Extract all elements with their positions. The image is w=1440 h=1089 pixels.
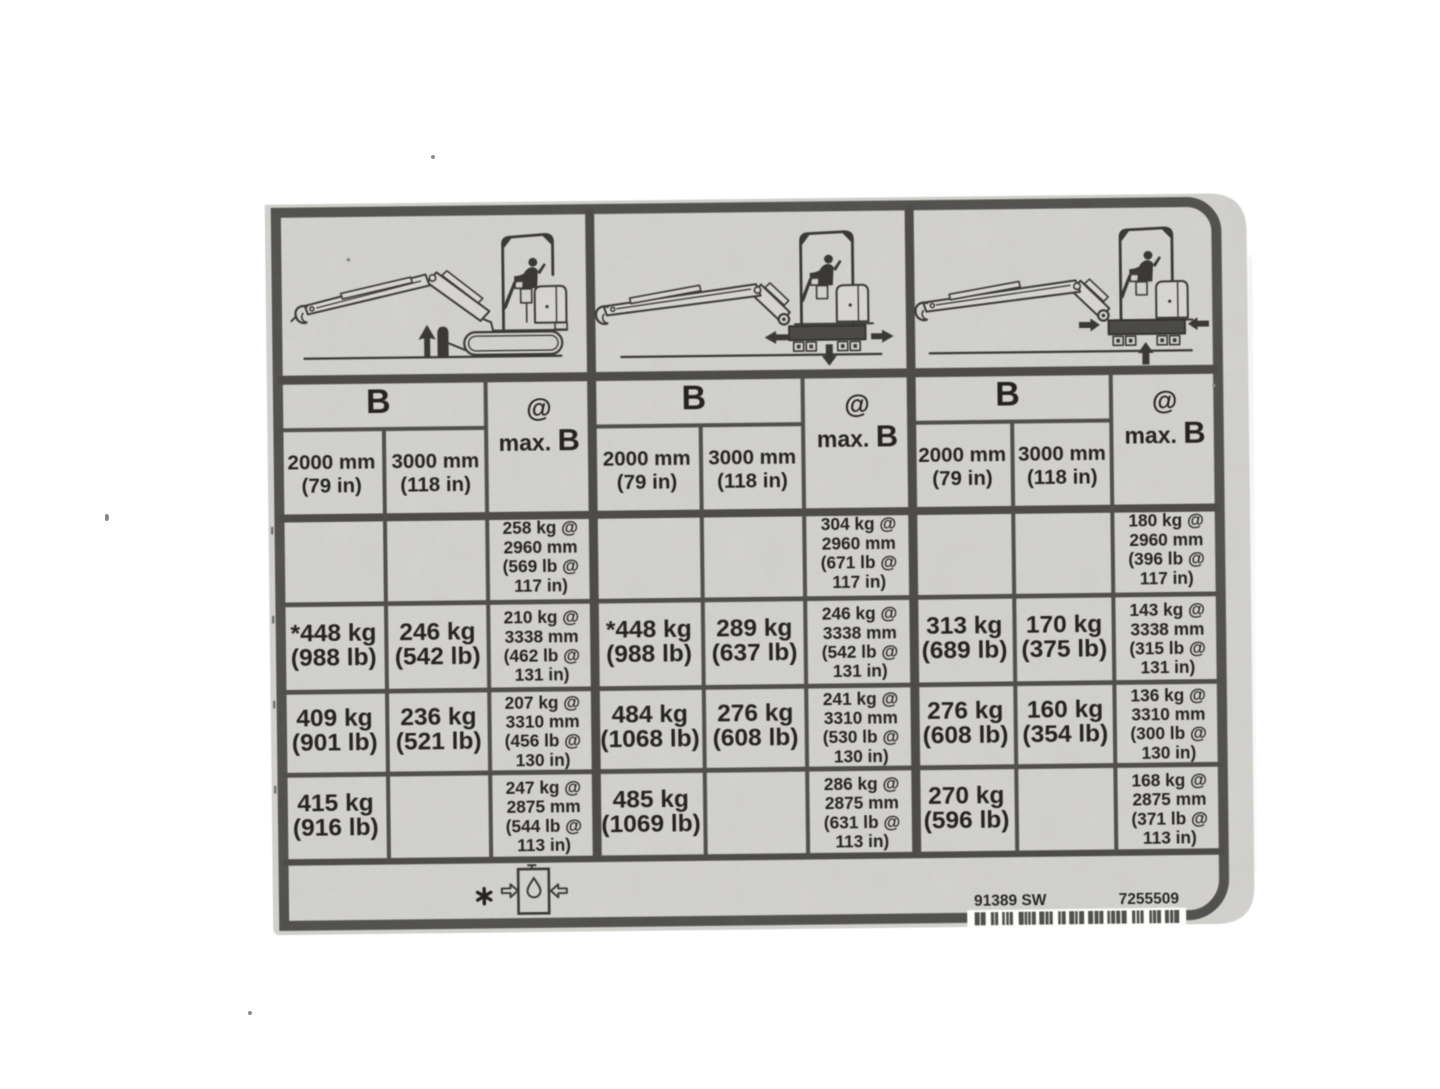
svg-text:136 kg @: 136 kg @ bbox=[1130, 684, 1206, 705]
svg-text:(569 lb @: (569 lb @ bbox=[502, 556, 579, 577]
svg-text:143 kg @: 143 kg @ bbox=[1129, 599, 1205, 620]
svg-text:113 in): 113 in) bbox=[1143, 827, 1197, 848]
svg-text:(596 lb): (596 lb) bbox=[924, 807, 1010, 835]
svg-text:3000 mm: 3000 mm bbox=[708, 445, 796, 469]
svg-text:131 in): 131 in) bbox=[515, 664, 570, 685]
svg-text:(608 lb): (608 lb) bbox=[713, 724, 799, 752]
svg-text:2875 mm: 2875 mm bbox=[825, 792, 899, 813]
svg-text:(371 lb @: (371 lb @ bbox=[1131, 808, 1208, 829]
svg-text:(901 lb): (901 lb) bbox=[292, 729, 378, 757]
svg-text:247 kg @: 247 kg @ bbox=[506, 777, 582, 798]
svg-text:210 kg @: 210 kg @ bbox=[504, 607, 580, 628]
svg-text:(300 lb @: (300 lb @ bbox=[1130, 723, 1207, 744]
svg-text:(988 lb): (988 lb) bbox=[606, 640, 692, 668]
svg-text:3338 mm: 3338 mm bbox=[823, 622, 897, 643]
svg-text:113 in): 113 in) bbox=[835, 831, 889, 852]
svg-text:@: @ bbox=[1152, 385, 1178, 415]
svg-text:(637 lb): (637 lb) bbox=[712, 639, 798, 667]
svg-text:(375 lb): (375 lb) bbox=[1021, 635, 1107, 663]
svg-text:(1068 lb): (1068 lb) bbox=[600, 725, 700, 753]
svg-text:B: B bbox=[995, 375, 1020, 413]
svg-text:3310 mm: 3310 mm bbox=[1131, 704, 1205, 725]
svg-text:117 in): 117 in) bbox=[832, 571, 886, 592]
svg-text:3338 mm: 3338 mm bbox=[1130, 619, 1204, 640]
svg-text:131 in): 131 in) bbox=[833, 661, 888, 682]
svg-text:(689 lb): (689 lb) bbox=[921, 636, 1007, 664]
svg-text:2960 mm: 2960 mm bbox=[822, 533, 896, 554]
svg-text:3338 mm: 3338 mm bbox=[505, 626, 579, 647]
svg-text:2000 mm: 2000 mm bbox=[287, 450, 375, 474]
svg-text:130 in): 130 in) bbox=[1141, 742, 1196, 763]
svg-text:130 in): 130 in) bbox=[516, 750, 571, 771]
svg-text:(79 in): (79 in) bbox=[932, 466, 993, 490]
svg-text:2000 mm: 2000 mm bbox=[918, 443, 1006, 467]
svg-text:(988 lb): (988 lb) bbox=[291, 644, 377, 672]
svg-text:(79 in): (79 in) bbox=[617, 470, 678, 494]
svg-text:117 in): 117 in) bbox=[1140, 568, 1194, 589]
svg-text:(608 lb): (608 lb) bbox=[923, 721, 1009, 749]
svg-text:2000 mm: 2000 mm bbox=[603, 447, 691, 471]
svg-text:B: B bbox=[366, 383, 391, 421]
svg-text:246 kg @: 246 kg @ bbox=[822, 603, 898, 624]
svg-text:2960 mm: 2960 mm bbox=[503, 536, 577, 557]
svg-text:(671 lb @: (671 lb @ bbox=[821, 552, 898, 573]
svg-text:180 kg @: 180 kg @ bbox=[1128, 510, 1204, 531]
svg-text:3310 mm: 3310 mm bbox=[506, 711, 580, 732]
svg-text:117 in): 117 in) bbox=[514, 575, 568, 596]
svg-text:207 kg @: 207 kg @ bbox=[505, 692, 581, 713]
svg-text:(79 in): (79 in) bbox=[301, 474, 362, 498]
svg-text:(462 lb @: (462 lb @ bbox=[504, 645, 581, 666]
svg-text:(1069 lb): (1069 lb) bbox=[601, 810, 701, 838]
svg-text:91389 SW: 91389 SW bbox=[974, 892, 1047, 910]
svg-text:(544 lb @: (544 lb @ bbox=[506, 815, 583, 836]
svg-text:(118 in): (118 in) bbox=[1027, 465, 1098, 489]
svg-text:168 kg @: 168 kg @ bbox=[1131, 769, 1207, 790]
svg-text:(916 lb): (916 lb) bbox=[293, 814, 379, 842]
svg-text:(315 lb @: (315 lb @ bbox=[1129, 638, 1206, 659]
svg-text:241 kg @: 241 kg @ bbox=[823, 688, 899, 709]
svg-text:3000 mm: 3000 mm bbox=[391, 449, 479, 473]
svg-text:304 kg @: 304 kg @ bbox=[821, 513, 897, 534]
svg-text:2875 mm: 2875 mm bbox=[507, 796, 581, 817]
svg-text:3310 mm: 3310 mm bbox=[824, 707, 898, 728]
svg-text:131 in): 131 in) bbox=[1140, 657, 1195, 678]
svg-text:113 in): 113 in) bbox=[517, 835, 571, 856]
svg-text:286 kg @: 286 kg @ bbox=[824, 773, 900, 794]
svg-text:(530 lb @: (530 lb @ bbox=[823, 726, 900, 747]
svg-text:(456 lb @: (456 lb @ bbox=[505, 730, 582, 751]
svg-text:130 in): 130 in) bbox=[834, 746, 889, 767]
svg-text:(118 in): (118 in) bbox=[400, 473, 471, 497]
svg-text:(631 lb @: (631 lb @ bbox=[824, 812, 901, 833]
svg-text:(542 lb): (542 lb) bbox=[395, 643, 481, 671]
svg-text:(396 lb @: (396 lb @ bbox=[1128, 548, 1205, 569]
svg-text:2960 mm: 2960 mm bbox=[1129, 529, 1203, 550]
svg-text:(521 lb): (521 lb) bbox=[396, 728, 482, 756]
svg-text:@: @ bbox=[844, 389, 870, 419]
svg-text:258 kg @: 258 kg @ bbox=[503, 517, 579, 538]
svg-text:(118 in): (118 in) bbox=[717, 469, 788, 493]
svg-text:2875 mm: 2875 mm bbox=[1132, 789, 1206, 810]
svg-text:B: B bbox=[681, 379, 706, 417]
svg-text:3000 mm: 3000 mm bbox=[1018, 442, 1106, 466]
svg-text:@: @ bbox=[526, 392, 552, 422]
svg-text:(542 lb @: (542 lb @ bbox=[822, 641, 899, 662]
svg-text:7255509: 7255509 bbox=[1119, 890, 1180, 908]
svg-text:(354 lb): (354 lb) bbox=[1022, 720, 1108, 748]
